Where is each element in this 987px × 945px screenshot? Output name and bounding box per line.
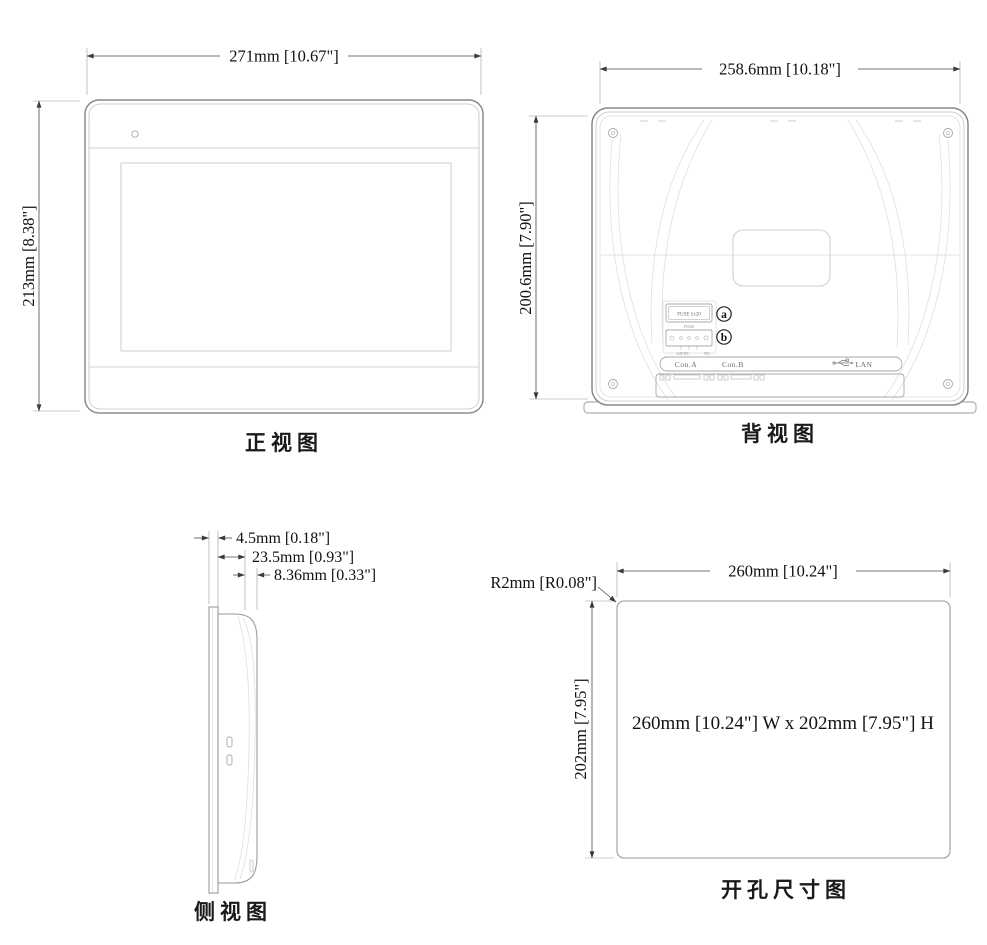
power-label-24vdc: 24VDC bbox=[676, 351, 689, 356]
side-bezel bbox=[209, 607, 218, 893]
power-label-fg: FG bbox=[704, 351, 709, 356]
cutout-radius-dimension: R2mm [R0.08"] bbox=[490, 573, 597, 592]
port-label-con-a: Con.A bbox=[675, 360, 697, 369]
fuse-caption: FUSE bbox=[684, 324, 695, 329]
back-view-label: 背视图 bbox=[741, 422, 819, 446]
side-view: 4.5mm [0.18"] 23.5mm [0.93"] 8.36mm [0.3… bbox=[194, 530, 376, 924]
back-height-dimension: 200.6mm [7.90"] bbox=[516, 201, 535, 315]
port-label-lan: LAN bbox=[856, 360, 873, 369]
side-view-label: 侧视图 bbox=[194, 900, 272, 924]
back-width-dimension: 258.6mm [10.18"] bbox=[719, 60, 841, 79]
cutout-center-text: 260mm [10.24"] W x 202mm [7.95"] H bbox=[632, 713, 934, 734]
cutout-width-dimension: 260mm [10.24"] bbox=[728, 562, 837, 581]
cutout-view: 260mm [10.24"] 202mm [7.95"] R2mm [R0.08… bbox=[490, 561, 950, 902]
callout-b: b bbox=[721, 332, 727, 344]
cutout-height-dimension: 202mm [7.95"] bbox=[571, 678, 590, 779]
front-view: 271mm [10.67"] 213mm [8.38"] 正视图 bbox=[19, 46, 483, 455]
side-dim-3: 8.36mm [0.33"] bbox=[274, 567, 376, 584]
front-view-label: 正视图 bbox=[245, 431, 323, 455]
side-body bbox=[218, 614, 257, 883]
side-dim-2: 23.5mm [0.93"] bbox=[252, 549, 354, 566]
front-housing-outline bbox=[85, 100, 483, 413]
technical-drawing-sheet: 271mm [10.67"] 213mm [8.38"] 正视图 bbox=[0, 0, 987, 945]
fuse-holder-label: FUSE 5x20 bbox=[677, 313, 701, 318]
front-width-dimension: 271mm [10.67"] bbox=[229, 47, 338, 66]
side-dim-1: 4.5mm [0.18"] bbox=[236, 530, 330, 547]
callout-a: a bbox=[721, 309, 727, 321]
drawing-svg: 271mm [10.67"] 213mm [8.38"] 正视图 bbox=[0, 0, 987, 945]
back-view: FUSE 5x20 FUSE 24VDC FG a b Con.A Con.B bbox=[516, 59, 976, 446]
cutout-view-label: 开孔尺寸图 bbox=[721, 878, 851, 902]
front-height-dimension: 213mm [8.38"] bbox=[19, 205, 38, 306]
back-housing-outline bbox=[592, 108, 968, 405]
port-label-con-b: Con.B bbox=[722, 360, 744, 369]
